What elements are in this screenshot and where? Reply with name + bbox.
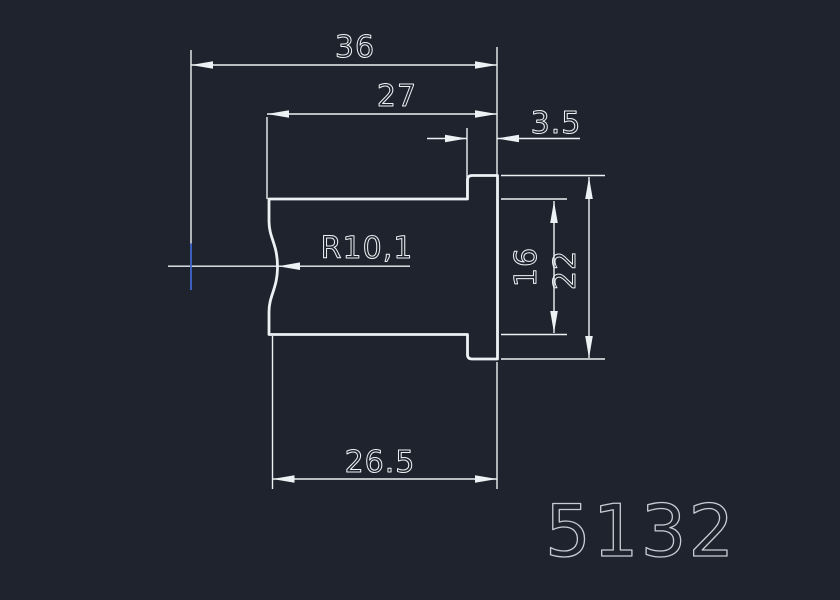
arrowhead-icon bbox=[497, 135, 519, 143]
dimension-bottom-width: 26.5 bbox=[273, 336, 498, 489]
arrowhead-icon bbox=[550, 311, 558, 333]
arrowhead-icon bbox=[278, 262, 300, 270]
part-outline bbox=[269, 176, 498, 360]
arrowhead-icon bbox=[475, 475, 497, 483]
arrowhead-icon bbox=[445, 135, 467, 143]
dim-flange-width-label: 3.5 bbox=[531, 106, 582, 141]
dim-flange-height-label: 22 bbox=[548, 250, 583, 290]
radius-leader: R10,1 bbox=[278, 231, 413, 270]
dim-bottom-width-label: 26.5 bbox=[345, 445, 416, 480]
arrowhead-icon bbox=[191, 61, 213, 69]
arrowhead-icon bbox=[585, 177, 593, 199]
radius-label: R10,1 bbox=[321, 231, 414, 266]
dim-total-width-label: 36 bbox=[335, 30, 375, 65]
dim-body-height-label: 16 bbox=[509, 247, 544, 287]
cad-viewport[interactable]: 36 27 3.5 R10,1 bbox=[0, 0, 840, 600]
arrowhead-icon bbox=[475, 61, 497, 69]
dimension-flange-width: 3.5 bbox=[427, 106, 581, 197]
dim-body-width-label: 27 bbox=[377, 79, 417, 114]
arrowhead-icon bbox=[550, 201, 558, 223]
arrowhead-icon bbox=[267, 110, 289, 118]
arrowhead-icon bbox=[585, 336, 593, 358]
part-number-label: 5132 bbox=[545, 489, 736, 573]
arrowhead-icon bbox=[273, 475, 295, 483]
arrowhead-icon bbox=[475, 110, 497, 118]
cad-drawing: 36 27 3.5 R10,1 bbox=[0, 0, 840, 600]
